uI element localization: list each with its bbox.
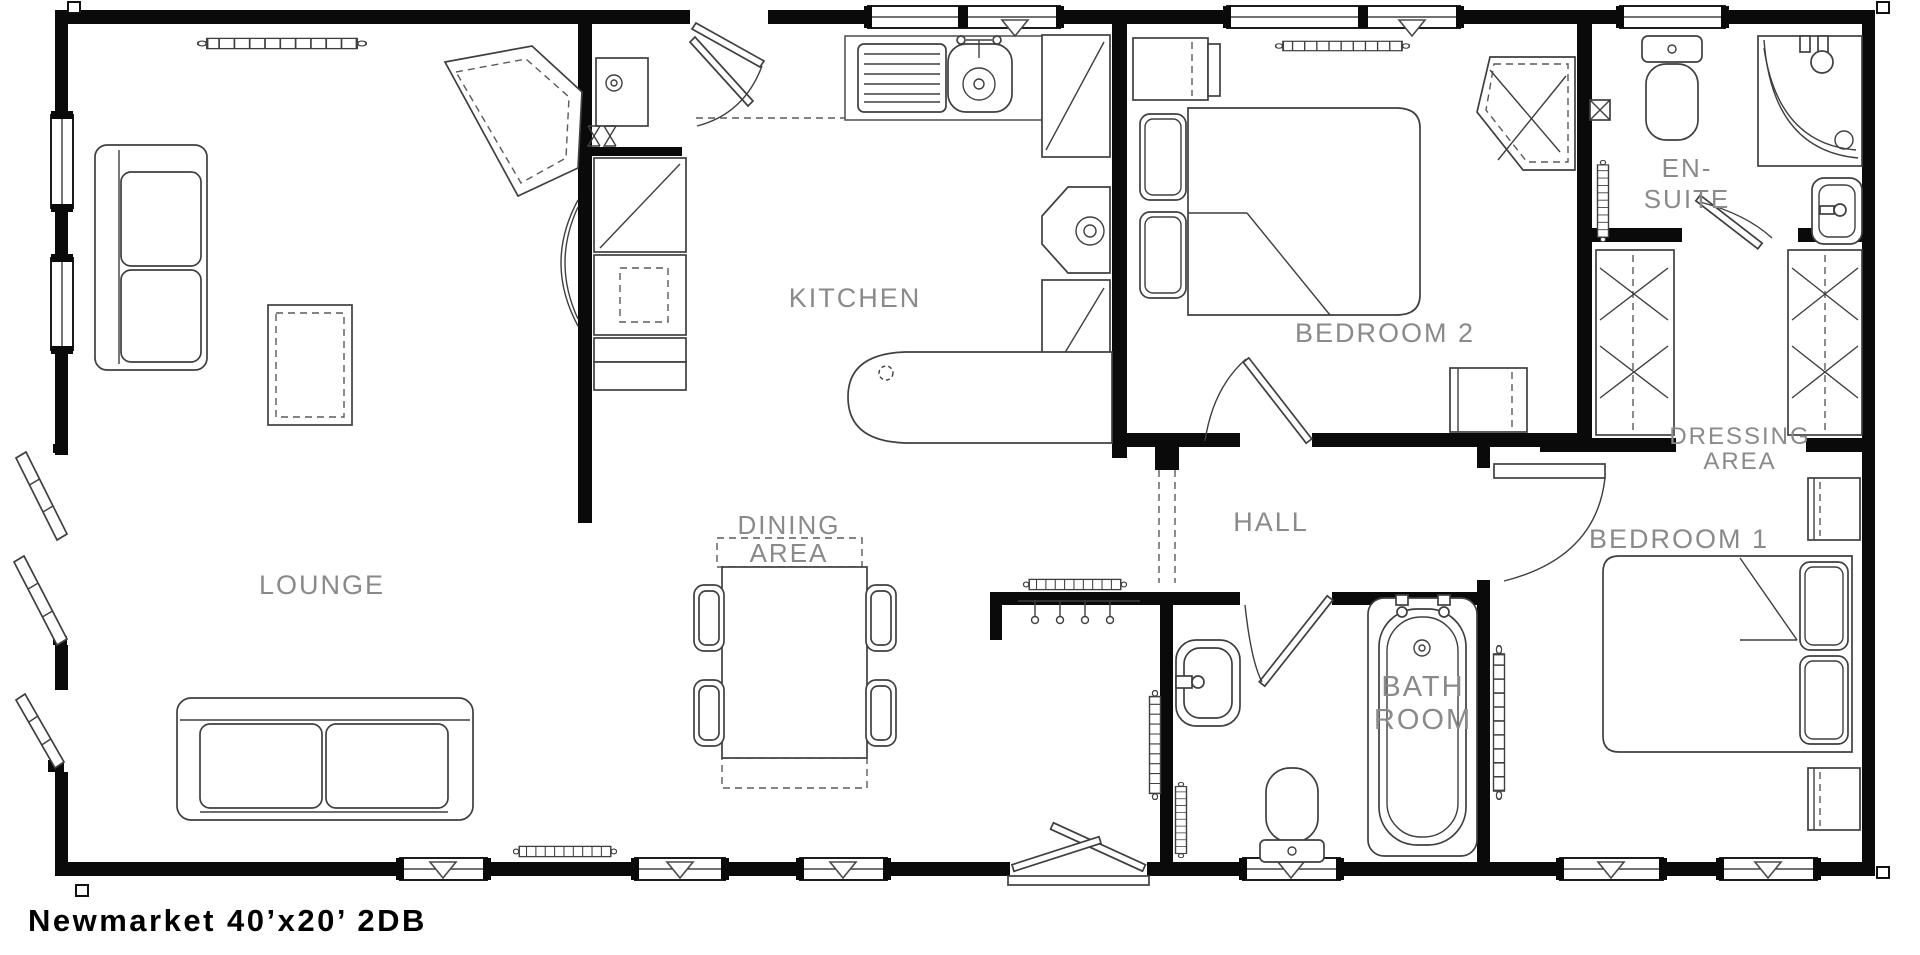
room-label-bedroom-2: BEDROOM 2 — [1295, 318, 1475, 348]
wardrobe — [1788, 250, 1862, 435]
corner-marker — [76, 885, 88, 896]
room-label-bathroom: BATHROOM — [1374, 671, 1472, 736]
wall-box — [1590, 100, 1610, 120]
dining-table — [722, 567, 867, 758]
window — [396, 858, 491, 880]
dining-chair — [694, 585, 724, 651]
floor-plan-drawing: LOUNGEKITCHENDININGAREAHALLBEDROOM 2BEDR… — [0, 0, 1920, 955]
radiator — [1150, 690, 1161, 799]
corner-marker — [1877, 867, 1889, 878]
radiator — [198, 38, 367, 48]
peninsula-counter — [848, 352, 1112, 443]
floor-plan-page: LOUNGEKITCHENDININGAREAHALLBEDROOM 2BEDR… — [0, 0, 1920, 955]
pillow — [1800, 656, 1848, 744]
room-label-lounge: LOUNGE — [259, 570, 385, 600]
coffee-table — [268, 305, 352, 425]
ensuite-sink — [1812, 178, 1862, 244]
ensuite-toilet — [1642, 36, 1702, 140]
radiator — [1276, 41, 1410, 50]
sink-bowl — [948, 44, 1012, 112]
window — [796, 858, 891, 880]
sink-tap — [1176, 676, 1192, 688]
radiator — [513, 846, 616, 856]
pillow — [1800, 562, 1848, 650]
window — [1556, 858, 1667, 880]
window — [1616, 6, 1729, 28]
shower-quadrant — [1758, 36, 1862, 166]
room-label-kitchen: KITCHEN — [789, 283, 922, 313]
room-label-bedroom-1: BEDROOM 1 — [1589, 524, 1769, 554]
pillow — [1140, 212, 1186, 298]
dining-chair — [866, 680, 896, 746]
corner-marker — [68, 2, 80, 13]
dining-chair — [694, 680, 724, 746]
bath-tap — [1438, 595, 1450, 605]
dining-chair — [866, 585, 896, 651]
radiator — [1598, 160, 1609, 241]
pillow — [1140, 114, 1186, 200]
bedside-cabinet — [1450, 368, 1527, 432]
radiator — [1494, 646, 1505, 800]
wardrobe — [1596, 250, 1674, 435]
corner-marker — [1877, 2, 1889, 13]
bathroom-sink — [1176, 640, 1240, 726]
bed-double — [1603, 556, 1852, 752]
radiator — [1023, 579, 1126, 589]
window — [631, 858, 729, 880]
shower-head — [1811, 51, 1833, 73]
window — [1716, 858, 1821, 880]
window — [51, 111, 73, 212]
appliance-units — [1042, 35, 1110, 390]
plan-title: Newmarket 40’x20’ 2DB — [28, 903, 427, 938]
sofa-two-seat — [95, 145, 207, 370]
tall-kitchen-units — [594, 158, 686, 390]
room-label-dining-area: DININGAREA — [738, 510, 841, 568]
sofa-three-seat — [177, 698, 473, 820]
room-label-hall: HALL — [1233, 507, 1309, 537]
bathroom-toilet — [1260, 768, 1324, 862]
bath-tap — [1396, 595, 1408, 605]
bedside-cabinet — [1808, 478, 1860, 540]
radiator — [1176, 782, 1187, 857]
dressing-table — [1133, 38, 1220, 100]
window — [51, 254, 73, 354]
bedside-cabinet — [1808, 768, 1860, 830]
